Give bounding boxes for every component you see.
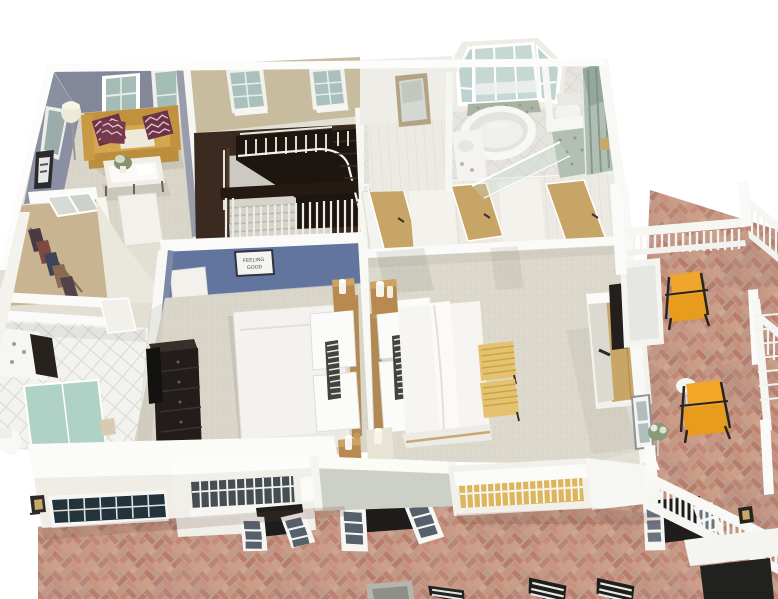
svg-text:FEELING: FEELING: [243, 257, 265, 264]
svg-text:GOOD: GOOD: [247, 264, 263, 271]
